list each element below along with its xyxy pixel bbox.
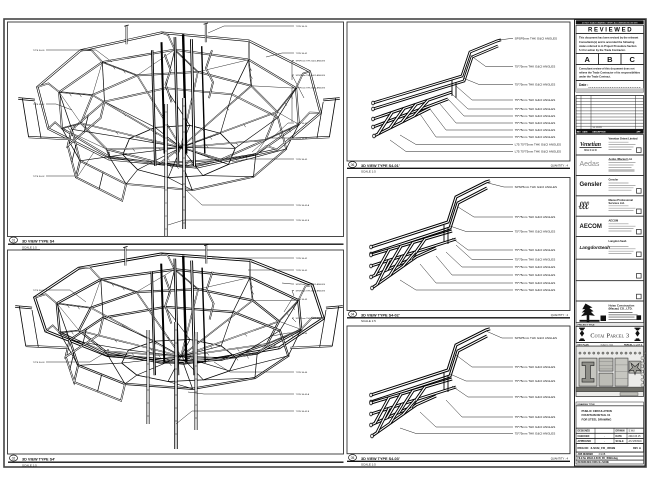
svg-text:3D VIEW TYPE S4-01': 3D VIEW TYPE S4-01' <box>361 164 400 168</box>
svg-text:TYPE S4-02: TYPE S4-02 <box>296 258 308 260</box>
svg-text:TYPE S4-03: TYPE S4-03 <box>296 299 308 301</box>
svg-text:75*75mm THK G&CI ANGLES: 75*75mm THK G&CI ANGLES <box>515 273 556 277</box>
svg-text:R E V I E W E D: R E V I E W E D <box>588 28 632 34</box>
svg-text:DESIGNED: DESIGNED <box>578 430 591 433</box>
svg-text:DO NOT SCALE DRAWING. VERIFY A: DO NOT SCALE DRAWING. VERIFY ALL DIMENSI… <box>582 21 639 24</box>
svg-text:3-SUB_FD_45699: 3-SUB_FD_45699 <box>591 446 616 450</box>
svg-text:JOB NUMBER: JOB NUMBER <box>578 454 594 456</box>
svg-text:75*75mm THK G&CI ANGLES: 75*75mm THK G&CI ANGLES <box>515 281 556 285</box>
svg-text:SCALE 1:5: SCALE 1:5 <box>361 462 376 466</box>
svg-text:75*75mm THK G&CI ANGLES: 75*75mm THK G&CI ANGLES <box>515 265 556 269</box>
svg-text:L75 75*75mm THK G&CI ANGLES: L75 75*75mm THK G&CI ANGLES <box>515 143 561 147</box>
svg-text:TYPE S4-09: TYPE S4-09 <box>33 50 45 52</box>
svg-text:Aedas (Macau) Ltd.: Aedas (Macau) Ltd. <box>609 157 633 161</box>
svg-text:TYPE S4-03: TYPE S4-03 <box>296 123 308 125</box>
svg-text:3D VIEW TYPE S4-03': 3D VIEW TYPE S4-03' <box>361 457 400 461</box>
svg-text:TYPE S4-06: TYPE S4-06 <box>296 372 308 374</box>
svg-text:75*75mm THK G&CI ANGLES: 75*75mm THK G&CI ANGLES <box>515 425 556 429</box>
svg-text:FILE No MA03-3-SUB_FD_45699.d: FILE No MA03-3-SUB_FD_45699.dwg <box>578 457 619 460</box>
svg-text:Date :: Date : <box>579 83 588 87</box>
svg-text:75*75mm THK G&CI ANGLES: 75*75mm THK G&CI ANGLES <box>515 107 556 111</box>
svg-text:05: 05 <box>351 456 355 460</box>
svg-text:75*75mm THK G&CI ANGLES: 75*75mm THK G&CI ANGLES <box>515 215 556 219</box>
svg-text:75*75mm THK G&CI ANGLES: 75*75mm THK G&CI ANGLES <box>515 83 556 87</box>
svg-text:relieve the Trade Contractor o: relieve the Trade Contractor of its resp… <box>579 71 641 75</box>
svg-text:SCALE 1:5: SCALE 1:5 <box>361 319 376 323</box>
svg-text:75*75mm THK G&CI ANGLES: 75*75mm THK G&CI ANGLES <box>515 248 556 252</box>
svg-text:75*75mm THK G&CI ANGLES: 75*75mm THK G&CI ANGLES <box>515 365 556 369</box>
svg-text:75*75mm THK G&CI ANGLES: 75*75mm THK G&CI ANGLES <box>515 114 556 118</box>
svg-text:Consultants(s) and is accorded: Consultants(s) and is accorded the follo… <box>579 40 635 44</box>
svg-text:02: 02 <box>12 456 16 460</box>
svg-text:75*75mm THK G&CI ANGLES: 75*75mm THK G&CI ANGLES <box>515 135 556 139</box>
svg-text:status referred to in Project: status referred to in Project Procedure … <box>579 44 637 48</box>
svg-text:S.WU: S.WU <box>629 430 636 433</box>
svg-text:TYPE S4-04: TYPE S4-04 <box>296 333 308 335</box>
svg-text:L75 75*75mm THK G&CI ANGLES: L75 75*75mm THK G&CI ANGLES <box>515 150 561 154</box>
svg-text:APPROVED: APPROVED <box>578 440 592 443</box>
svg-text:SPSP5mm THK G&CI ANGLES: SPSP5mm THK G&CI ANGLES <box>296 87 326 90</box>
svg-text:TYPE S4-10: TYPE S4-10 <box>296 26 308 28</box>
svg-text:SCALE 1:5: SCALE 1:5 <box>22 246 37 250</box>
svg-text:75*75mm THK G&CI ANGLES: 75*75mm THK G&CI ANGLES <box>515 258 556 262</box>
svg-text:AECOM: AECOM <box>580 224 602 230</box>
svg-text:QUANTITY : 4: QUANTITY : 4 <box>551 313 569 317</box>
svg-text:3-SUB: 3-SUB <box>599 454 606 456</box>
svg-text:DESCRIPTION: DESCRIPTION <box>593 132 607 134</box>
svg-text:LangdonSeah: LangdonSeah <box>580 245 611 250</box>
svg-text:Gensler: Gensler <box>609 178 619 182</box>
svg-text:TYPE S4-02: TYPE S4-02 <box>33 104 45 106</box>
svg-text:2010.03.15: 2010.03.15 <box>629 435 642 438</box>
svg-text:75*75mm THK G&CI ANGLES: 75*75mm THK G&CI ANGLES <box>515 128 556 132</box>
svg-text:REV: REV <box>633 447 638 450</box>
svg-text:75*75mm THK G&CI ANGLES: 75*75mm THK G&CI ANGLES <box>515 230 556 234</box>
svg-text:S4 45699: S4 45699 <box>593 127 603 129</box>
svg-text:75*75mm THK G&CI ANGLES: 75*75mm THK G&CI ANGLES <box>515 379 556 383</box>
svg-text:3D VIEW TYPE S4': 3D VIEW TYPE S4' <box>22 457 55 461</box>
svg-text:M A C A O: M A C A O <box>584 148 596 152</box>
svg-text:AECOM: AECOM <box>609 218 619 222</box>
svg-text:C: C <box>629 55 635 64</box>
svg-text:75*75mm THK G&CI ANGLES: 75*75mm THK G&CI ANGLES <box>515 288 556 292</box>
svg-text:3D VIEW TYPE S4: 3D VIEW TYPE S4 <box>22 239 55 243</box>
svg-text:TYPE S4-05 A: TYPE S4-05 A <box>296 204 310 207</box>
svg-text:75*75mm THK G&CI ANGLES: 75*75mm THK G&CI ANGLES <box>515 65 556 69</box>
svg-text:SCALE 1:5: SCALE 1:5 <box>361 169 376 173</box>
svg-text:Venetian Orient Limited: Venetian Orient Limited <box>609 137 638 141</box>
svg-text:ℓℓℓ: ℓℓℓ <box>579 200 590 212</box>
svg-text:under the Trade Contract.: under the Trade Contract. <box>579 75 611 79</box>
svg-text:75*75mm THK G&CI ANGLES: 75*75mm THK G&CI ANGLES <box>515 395 556 399</box>
svg-text:DATE: DATE <box>583 131 589 134</box>
svg-text:QUANTITY : 4: QUANTITY : 4 <box>551 457 569 461</box>
svg-text:-: - <box>604 435 605 438</box>
svg-text:TYPE S4-05 B: TYPE S4-05 B <box>296 411 310 413</box>
svg-text:04: 04 <box>351 312 355 316</box>
svg-text:FOR STEEL DRAWING: FOR STEEL DRAWING <box>582 417 612 421</box>
svg-text:06: 06 <box>351 163 355 167</box>
svg-text:75*75mm THK G&CI ANGLES: 75*75mm THK G&CI ANGLES <box>515 415 556 419</box>
svg-text:TYPE S4-02: TYPE S4-02 <box>296 53 308 55</box>
svg-text:SPSP5mm THK G&CI ANGLES: SPSP5mm THK G&CI ANGLES <box>296 317 326 320</box>
svg-text:B: B <box>607 55 613 64</box>
svg-text:TYPE S4-05: TYPE S4-05 <box>296 270 308 272</box>
svg-text:TYPE S4-02: TYPE S4-02 <box>33 176 45 178</box>
svg-text:-: - <box>604 440 605 443</box>
svg-text:TYPE S4-02: TYPE S4-02 <box>33 290 45 292</box>
svg-text:AS SHOWN: AS SHOWN <box>629 440 642 443</box>
svg-text:SCALE 1:5: SCALE 1:5 <box>22 463 37 467</box>
svg-text:REFERENCE DWG No NONE: REFERENCE DWG No NONE <box>578 462 610 464</box>
svg-text:SPSP5mm THK G&CI ANGLES: SPSP5mm THK G&CI ANGLES <box>296 74 326 77</box>
svg-text:TYPE S4-04: TYPE S4-04 <box>296 138 308 140</box>
svg-text:75*75mm THK G&CI ANGLES: 75*75mm THK G&CI ANGLES <box>515 98 556 102</box>
svg-text:3D VIEW TYPE S4-02': 3D VIEW TYPE S4-02' <box>361 313 400 317</box>
svg-text:Cotai Parcel 3: Cotai Parcel 3 <box>590 332 629 339</box>
svg-text:SCALE: SCALE <box>616 440 625 443</box>
svg-text:(Macau) CO., LTD.: (Macau) CO., LTD. <box>609 307 633 311</box>
svg-text:75*75mm THK G&CI ANGLES: 75*75mm THK G&CI ANGLES <box>515 432 556 436</box>
svg-text:DATE: DATE <box>616 435 623 438</box>
svg-text:DWG NO: DWG NO <box>578 446 589 450</box>
svg-text:A: A <box>639 446 642 450</box>
svg-text:Aedas: Aedas <box>580 161 600 168</box>
svg-text:5.4 for action by the Trade Co: 5.4 for action by the Trade Contractor. <box>579 48 626 52</box>
svg-text:CHECKED: CHECKED <box>578 435 590 438</box>
svg-text:SPSP5mm THK G&CI ANGLES: SPSP5mm THK G&CI ANGLES <box>296 60 326 63</box>
svg-text:Services Ltd.: Services Ltd. <box>609 201 625 205</box>
svg-text:A: A <box>584 55 590 64</box>
svg-text:Gensler: Gensler <box>580 182 603 188</box>
svg-text:75*75mm THK G&CI ANGLES: 75*75mm THK G&CI ANGLES <box>515 121 556 125</box>
svg-text:SPSP5mm THK G&CI ANGLES: SPSP5mm THK G&CI ANGLES <box>296 283 326 286</box>
svg-text:TYPE S4-05: TYPE S4-05 <box>296 159 308 161</box>
svg-text:DRAWN: DRAWN <box>616 430 625 433</box>
svg-text:TYPE S4-05 A: TYPE S4-05 A <box>296 393 310 396</box>
svg-text:Consultant review of this docu: Consultant review of this document does … <box>579 67 635 71</box>
svg-text:QUANTITY : 4: QUANTITY : 4 <box>551 164 569 168</box>
svg-text:01: 01 <box>12 238 16 242</box>
svg-text:TYPE S4-03: TYPE S4-03 <box>33 362 45 364</box>
svg-text:SPSP5mm THK G&CI ANGLES: SPSP5mm THK G&CI ANGLES <box>515 336 557 340</box>
svg-text:SPSP5mm THK G&CI ANGLES: SPSP5mm THK G&CI ANGLES <box>515 37 557 41</box>
svg-text:SPSP5mm THK G&CI ANGLES: SPSP5mm THK G&CI ANGLES <box>515 185 557 189</box>
svg-text:SPSP5mm THK G&CI ANGLES: SPSP5mm THK G&CI ANGLES <box>296 290 326 293</box>
svg-text:This document has been revised: This document has been revised by the re… <box>579 36 638 40</box>
svg-text:Langdon Seah: Langdon Seah <box>609 239 627 243</box>
svg-text:TYPE S4-05 B: TYPE S4-05 B <box>296 220 310 222</box>
